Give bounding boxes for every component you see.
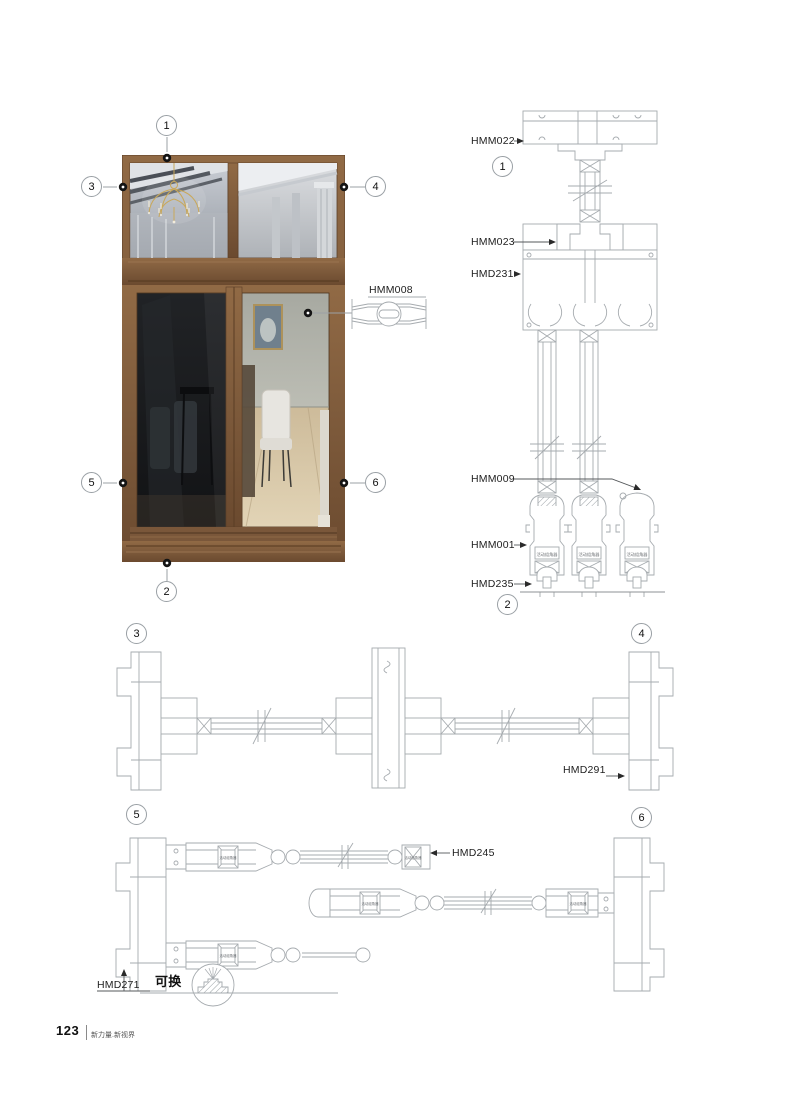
label-hmd245: HMD245: [452, 847, 495, 859]
label-hmd291: HMD291: [563, 764, 606, 776]
callout-section-2: 2: [497, 594, 518, 615]
label-hmm001: HMM001: [471, 539, 515, 551]
callout-photo-3: 3: [81, 176, 102, 197]
annotation-overlay: [0, 0, 800, 1093]
label-hmm008: HMM008: [369, 284, 413, 296]
callout-section-4: 4: [631, 623, 652, 644]
callout-section-1: 1: [492, 156, 513, 177]
callout-section-6: 6: [631, 807, 652, 828]
footer-tagline: 新力量.新视界: [91, 1030, 135, 1040]
page-number: 123: [56, 1023, 79, 1038]
callout-photo-6: 6: [365, 472, 386, 493]
label-replaceable: 可换: [155, 971, 181, 990]
callout-photo-1: 1: [156, 115, 177, 136]
label-hmd235: HMD235: [471, 578, 514, 590]
callout-section-5: 5: [126, 804, 147, 825]
label-hmm009: HMM009: [471, 473, 515, 485]
callout-photo-2: 2: [156, 581, 177, 602]
callout-photo-4: 4: [365, 176, 386, 197]
label-hmd231: HMD231: [471, 268, 514, 280]
catalog-page: 活动组角器 活动组角器 活动组角器: [0, 0, 800, 1093]
hmm008-detail-drawing: [352, 297, 426, 329]
label-hmd271: HMD271: [97, 979, 140, 991]
callout-dots: [119, 154, 348, 567]
footer-divider: [86, 1025, 87, 1040]
label-hmm023: HMM023: [471, 236, 515, 248]
label-hmm022: HMM022: [471, 135, 515, 147]
callout-section-3: 3: [126, 623, 147, 644]
callout-photo-5: 5: [81, 472, 102, 493]
